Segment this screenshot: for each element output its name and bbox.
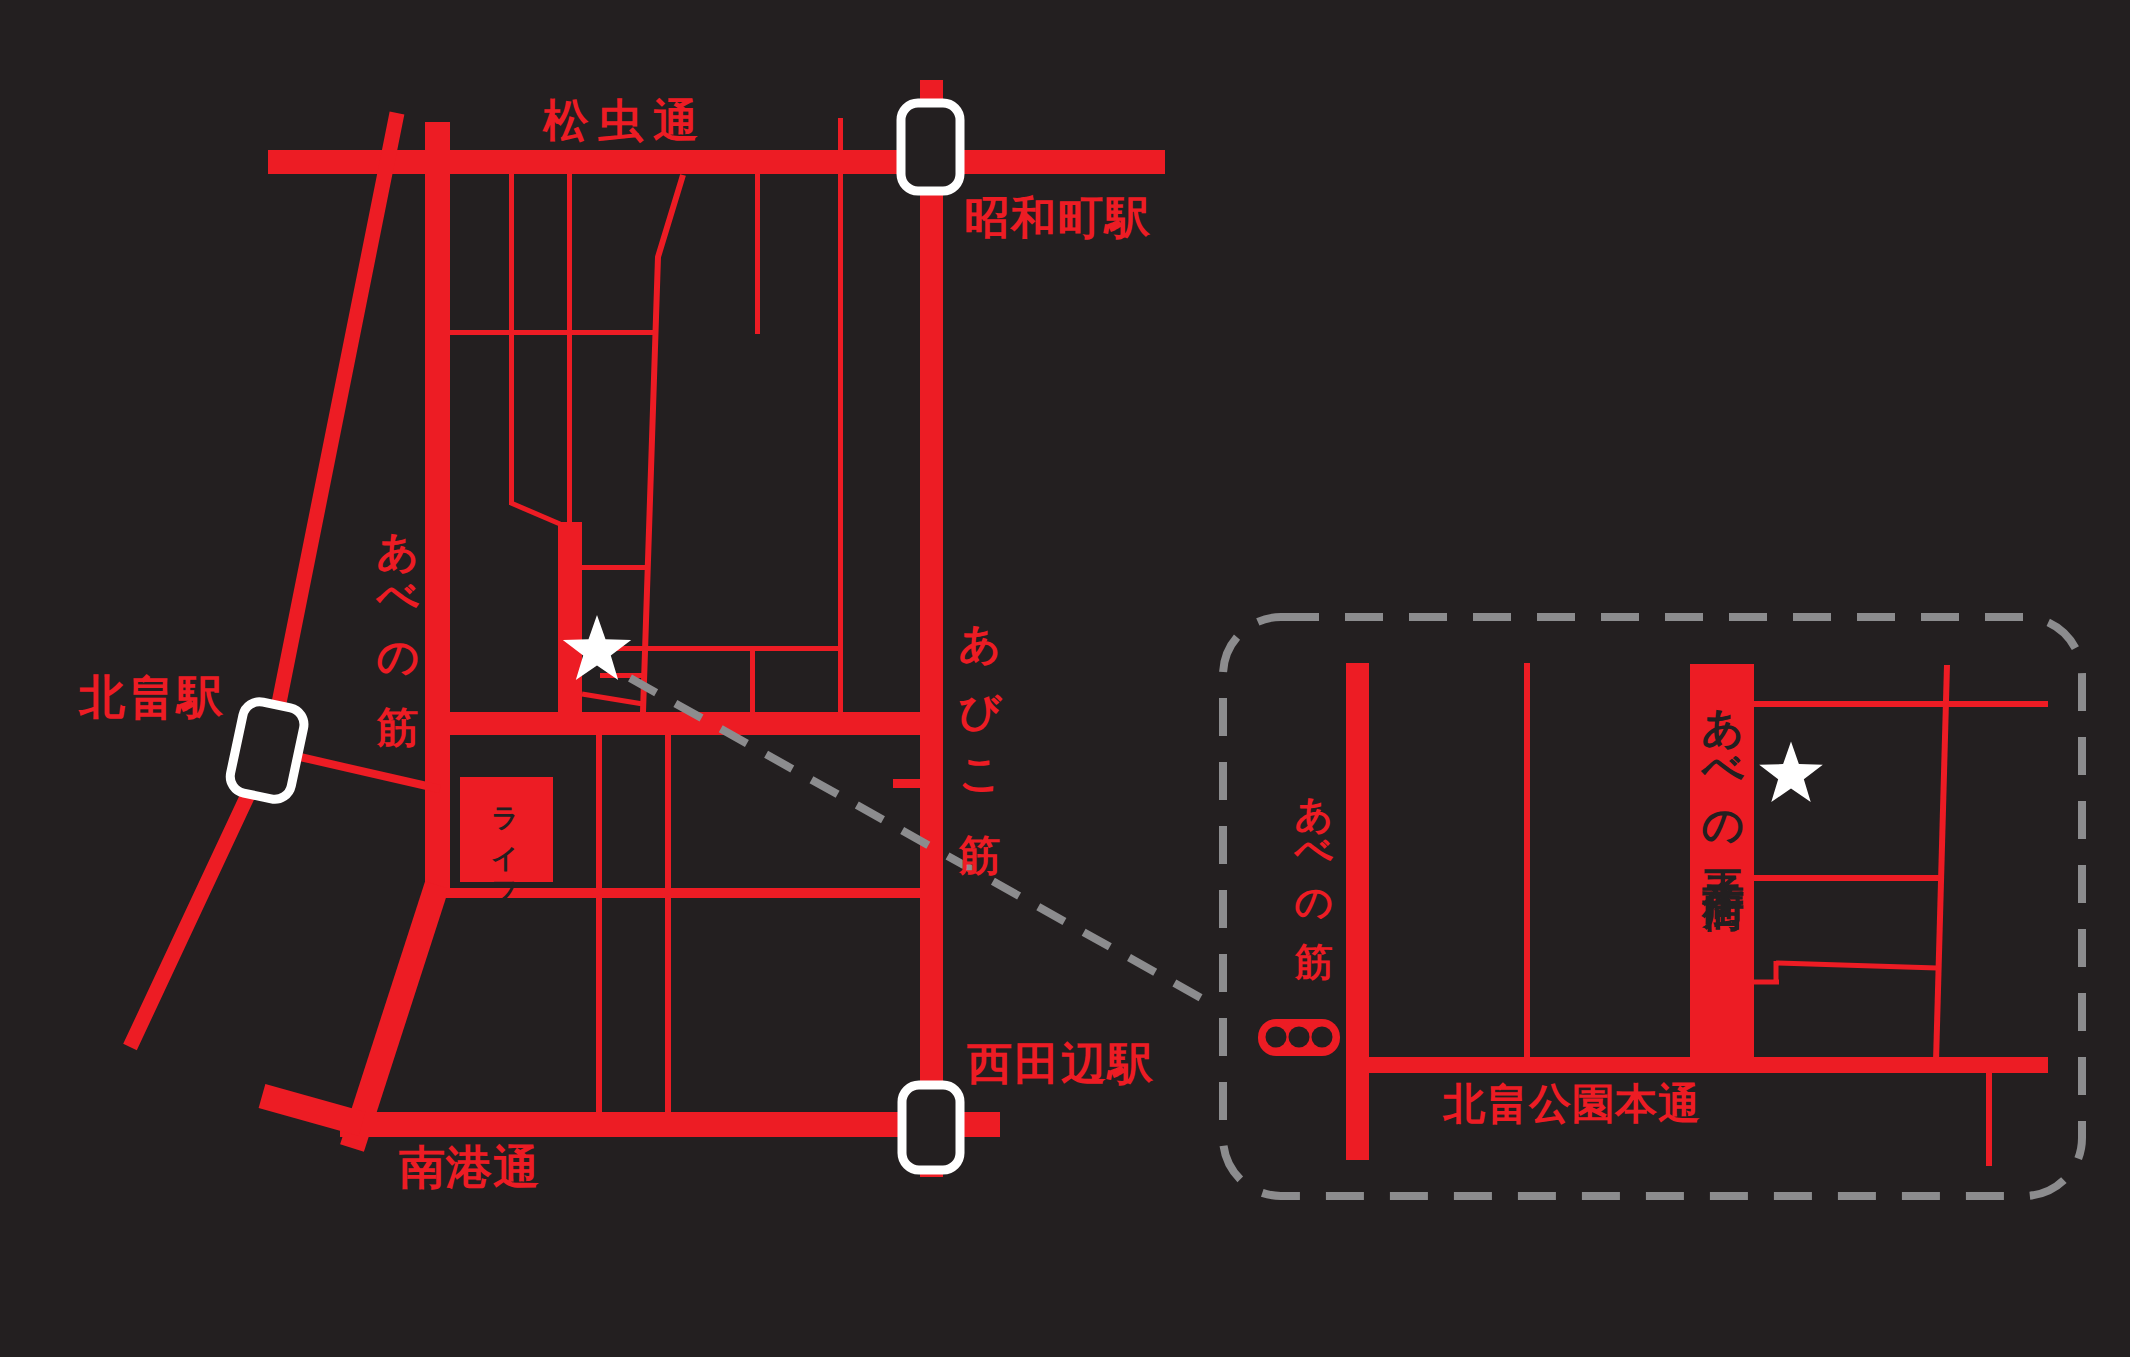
inset-label-kitabatake-koen-hondori: 北畠公園本通 — [1443, 1083, 1701, 1125]
minor-street-h5 — [582, 694, 643, 704]
street-station-connector — [300, 757, 440, 789]
road-middle — [425, 712, 943, 735]
railway-line — [130, 113, 397, 1047]
label-nishitanabe-station: 西田辺駅 — [967, 1042, 1155, 1087]
street-stub-east — [893, 779, 925, 788]
minor-street-v7 — [838, 118, 843, 712]
star-marker-inset — [1759, 742, 1823, 803]
road-nanko-dori-west — [262, 1096, 362, 1124]
minor-street-v1 — [509, 174, 514, 505]
inset-street-hb — [1754, 875, 1939, 881]
label-life-store: ライフ — [489, 788, 518, 901]
minor-street-v3 — [643, 175, 683, 712]
minor-street-h1 — [450, 330, 657, 335]
minor-street-v2 — [567, 174, 572, 522]
inset-road-abeno-suji — [1346, 663, 1369, 1160]
label-nanko-dori: 南港通 — [399, 1145, 540, 1191]
station-marker-kitabatake — [227, 699, 307, 803]
inset-road-kitabatake-koen-hondori — [1369, 1057, 2048, 1073]
label-abiko-suji: あびこ筋 — [957, 594, 1001, 822]
minor-street-h2 — [582, 565, 647, 570]
inset-street-stub — [1986, 1073, 1992, 1166]
road-abeno-suji — [425, 122, 450, 895]
label-matsumushi-dori: 松虫通 — [543, 99, 708, 144]
road-matsumushi-dori — [268, 150, 1165, 174]
inset-street-va — [1936, 665, 1947, 1062]
minor-street-v6 — [755, 174, 760, 334]
minor-street-v5 — [750, 648, 755, 712]
traffic-light-icon — [1258, 1019, 1340, 1056]
inset-label-oji-shotengai: あべの王子商店街 — [1700, 678, 1744, 862]
shotengai-band-main — [558, 522, 582, 712]
minor-street-s2 — [665, 735, 671, 1112]
station-marker-nishitanabe — [902, 1085, 960, 1170]
label-showacho-station: 昭和町駅 — [964, 196, 1152, 241]
inset-minor-street-v — [1524, 663, 1530, 1057]
road-abeno-suji-lower — [352, 885, 437, 1148]
minor-street-v1-link — [511, 503, 560, 524]
inset-label-abeno-suji: あべの筋 — [1293, 770, 1333, 916]
road-abiko-suji — [920, 80, 943, 1177]
inset-street-ha — [1754, 701, 2048, 707]
minor-street-s1 — [596, 735, 602, 1112]
access-map: 松虫通 昭和町駅 あびこ筋 あべの筋 北畠駅 ライフ 南港通 西田辺駅 あべの筋… — [0, 0, 2130, 1357]
inset-street-jog-c — [1776, 963, 1937, 968]
label-kitabatake-station: 北畠駅 — [79, 675, 226, 721]
label-abeno-suji: あべの筋 — [375, 502, 419, 682]
station-marker-showacho — [901, 103, 960, 191]
